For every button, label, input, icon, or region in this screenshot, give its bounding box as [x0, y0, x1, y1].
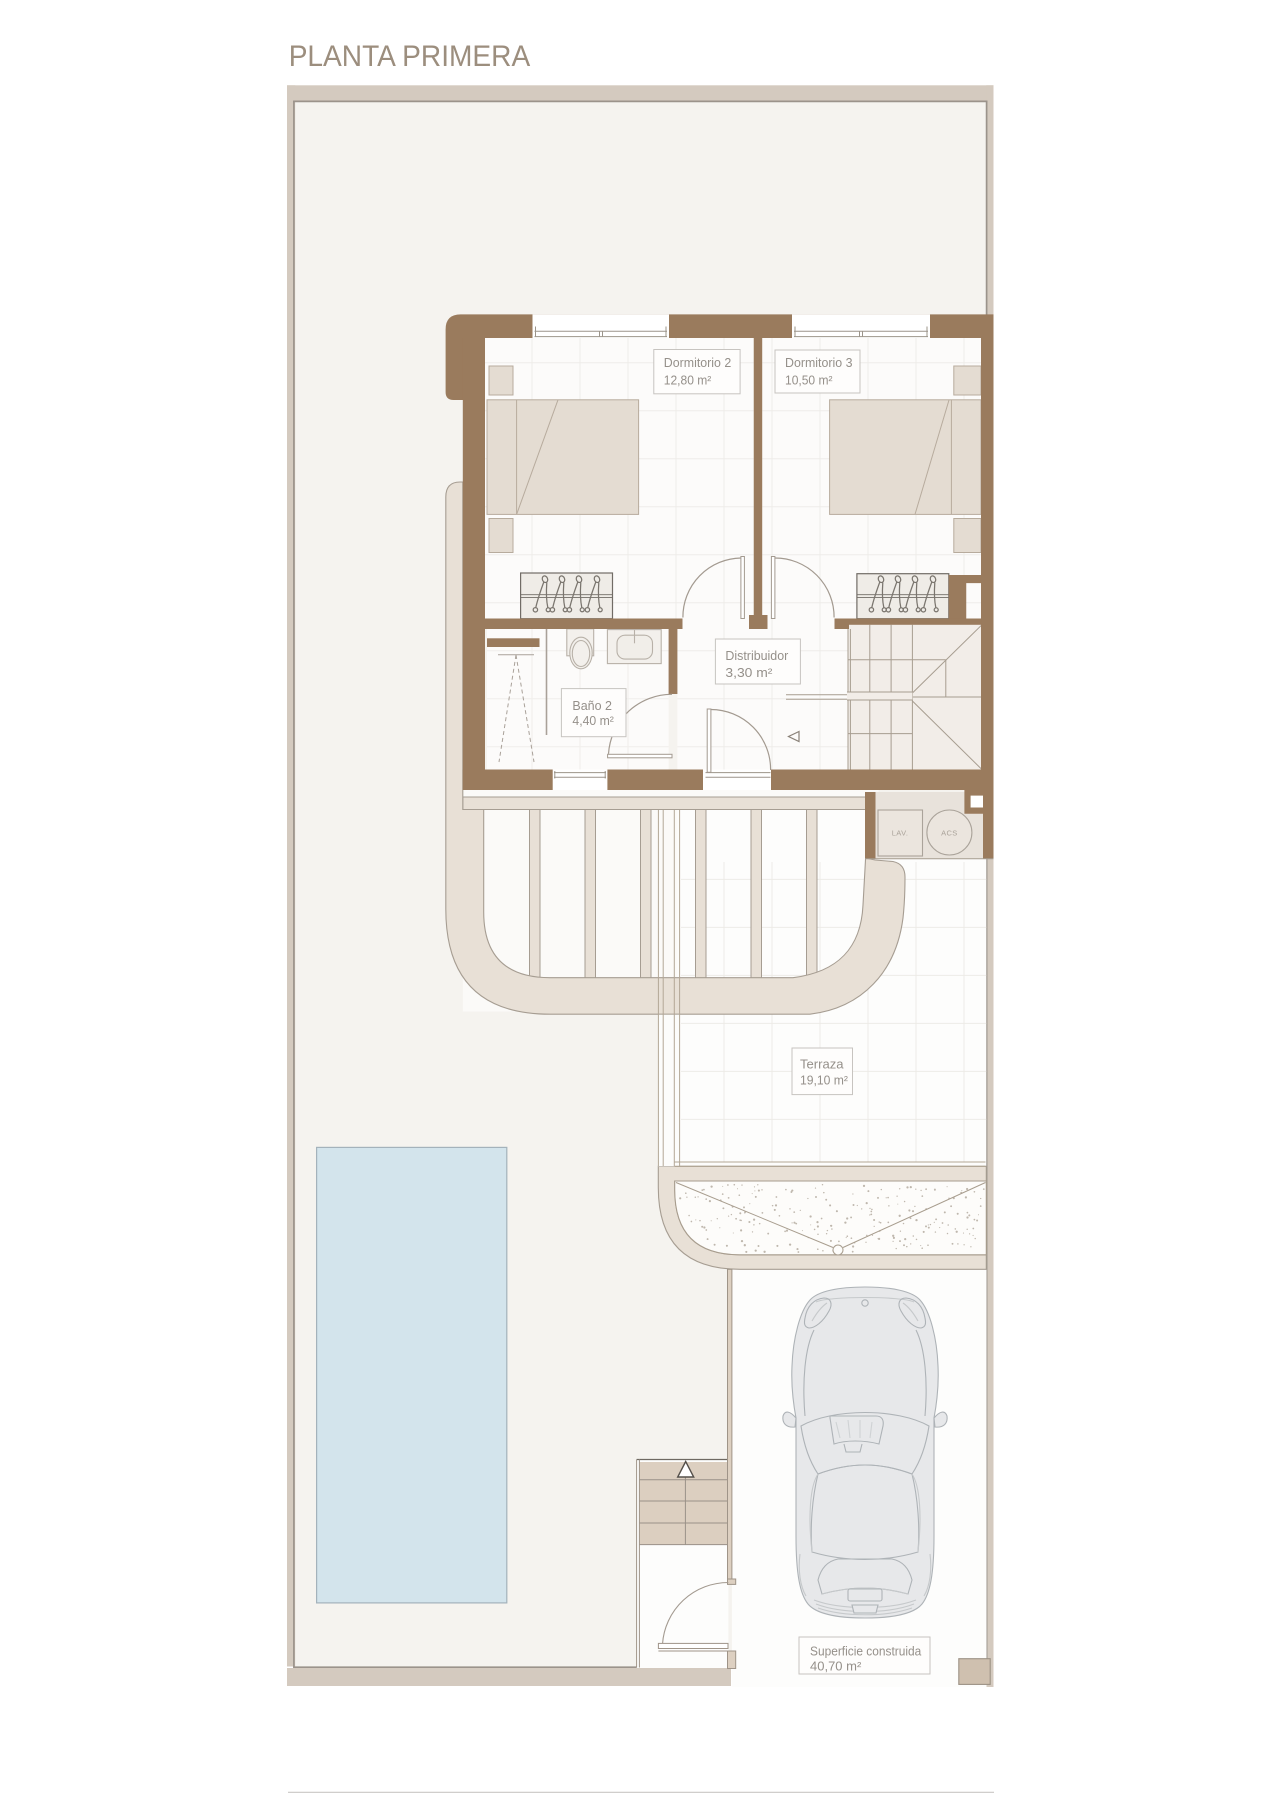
svg-text:Baño 2: Baño 2: [572, 698, 612, 713]
svg-text:12,80 m²: 12,80 m²: [664, 373, 712, 388]
svg-text:Dormitorio 3: Dormitorio 3: [785, 355, 853, 370]
svg-text:Distribuidor: Distribuidor: [725, 648, 789, 663]
svg-text:10,50 m²: 10,50 m²: [785, 373, 833, 388]
svg-text:Superficie construida: Superficie construida: [810, 1645, 921, 1659]
svg-text:3,30 m²: 3,30 m²: [725, 665, 773, 680]
svg-text:PLANTA PRIMERA: PLANTA PRIMERA: [289, 40, 531, 73]
svg-text:ACS: ACS: [941, 829, 958, 838]
svg-text:Terraza: Terraza: [800, 1058, 844, 1072]
svg-text:4,40 m²: 4,40 m²: [572, 713, 614, 728]
svg-text:40,70 m²: 40,70 m²: [810, 1660, 861, 1674]
svg-text:LAV.: LAV.: [892, 829, 909, 838]
svg-text:Dormitorio 2: Dormitorio 2: [664, 355, 732, 370]
svg-text:19,10 m²: 19,10 m²: [800, 1074, 848, 1088]
